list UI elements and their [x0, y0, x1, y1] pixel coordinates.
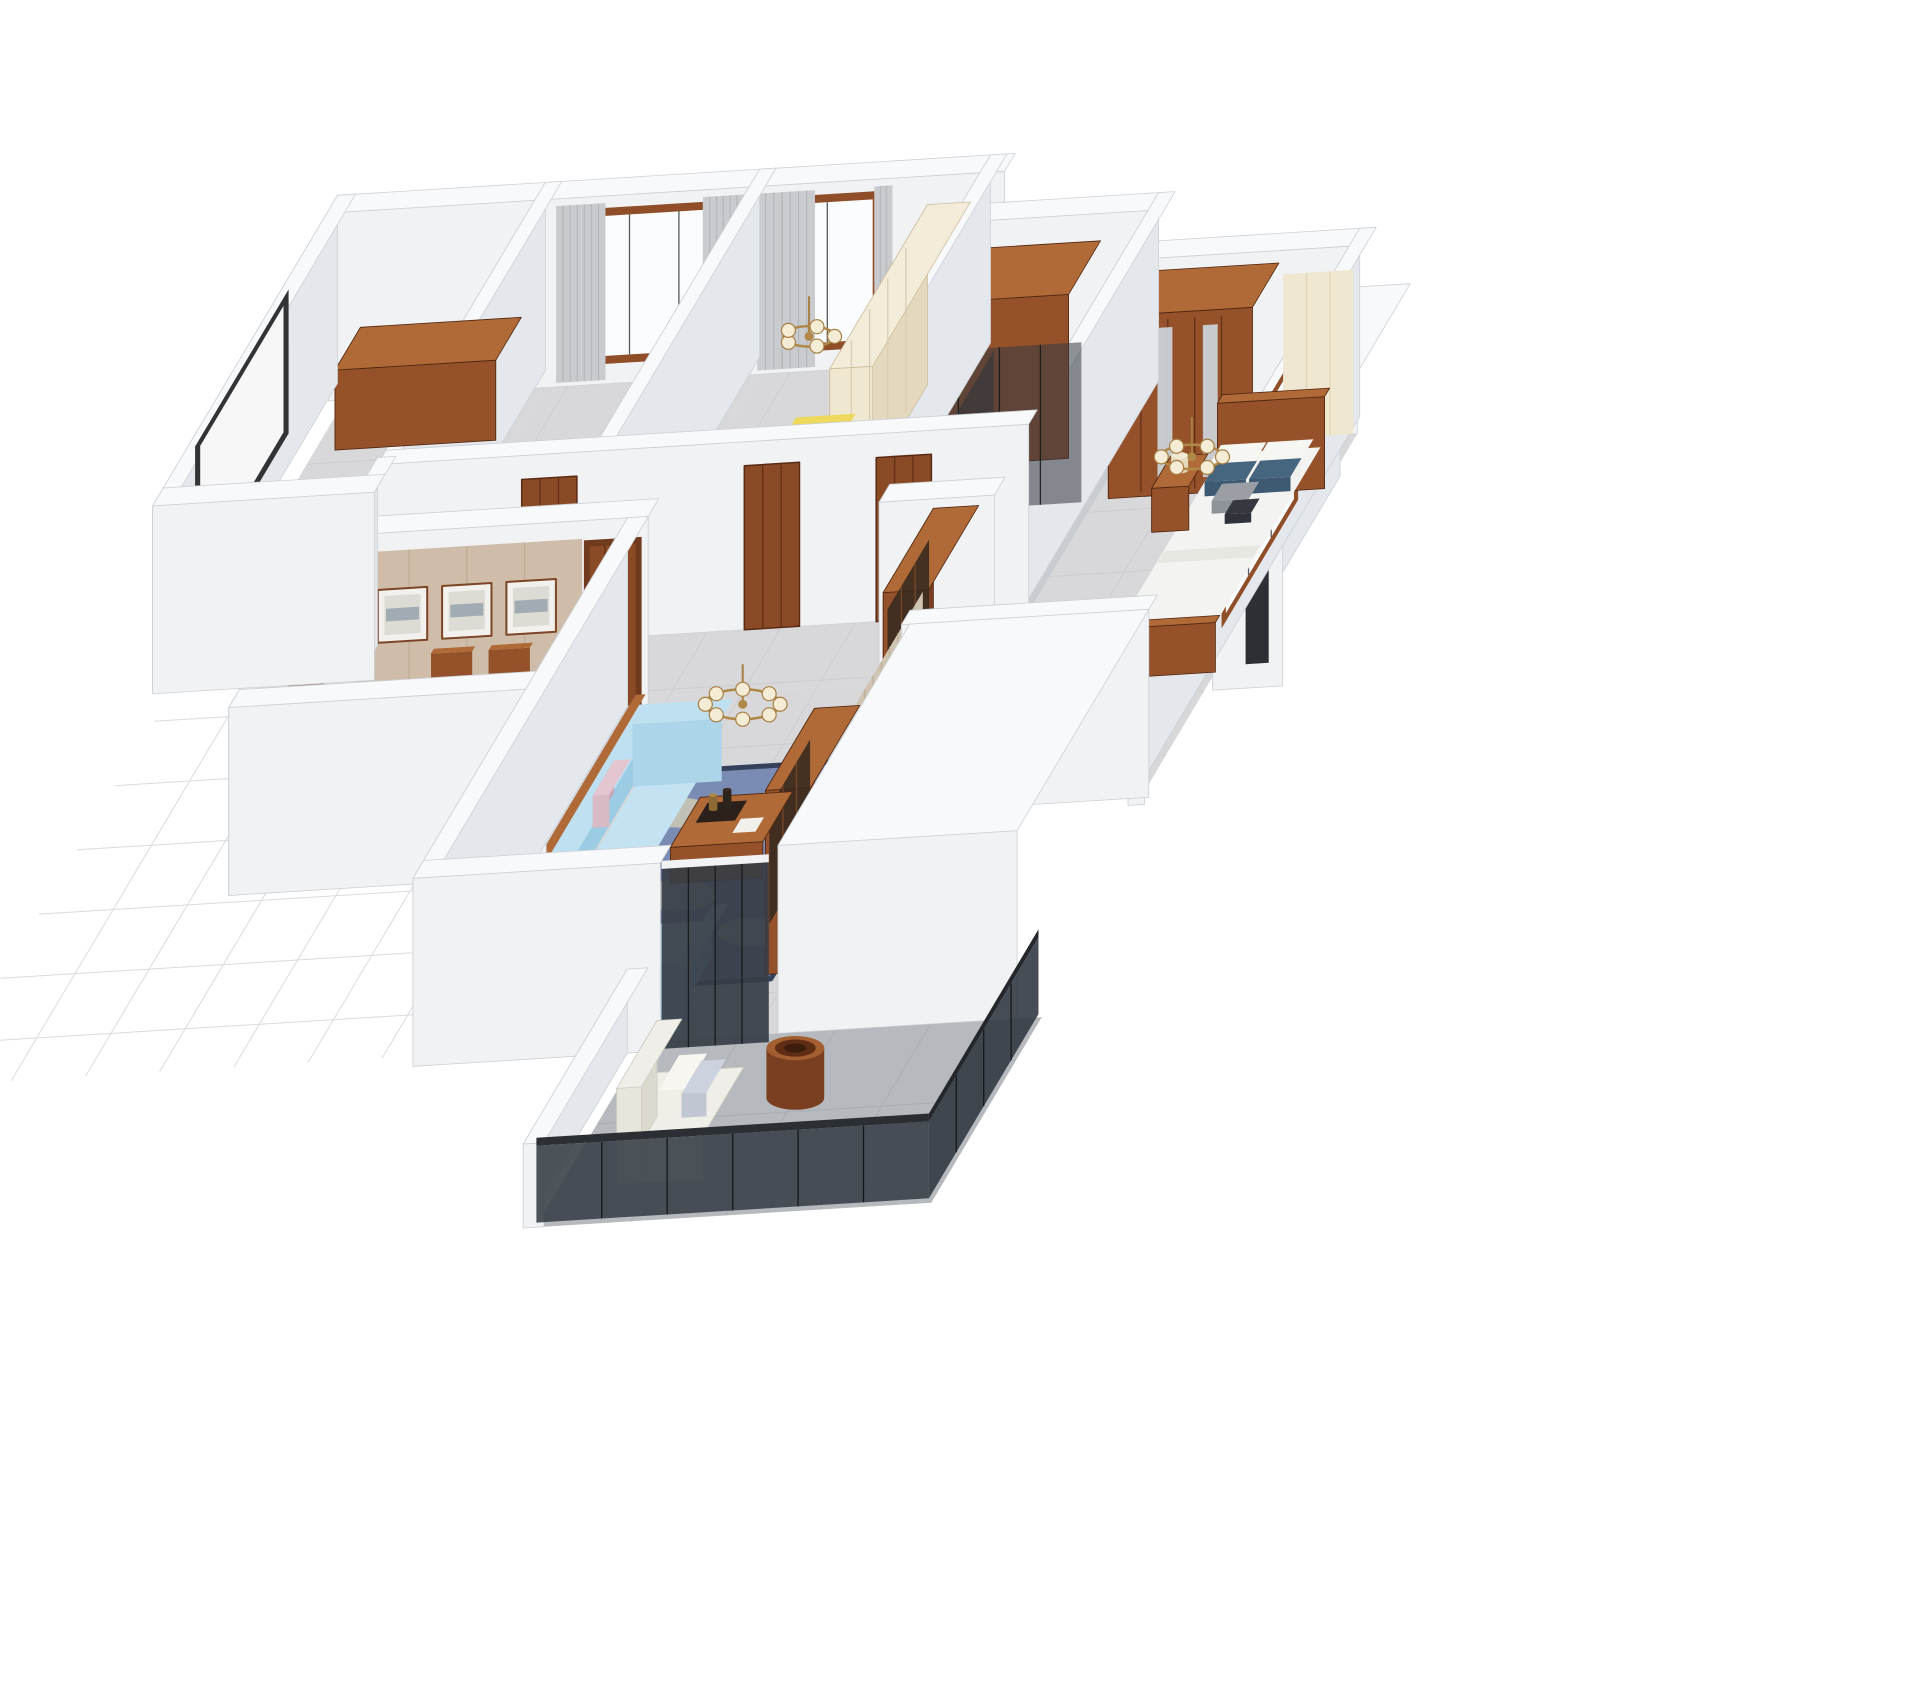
living-chandelier-shade — [762, 687, 776, 701]
master-chandelier-shade — [1170, 439, 1184, 453]
painting-art-band — [386, 607, 419, 622]
master-chandelier-shade — [1170, 460, 1184, 474]
bedroom2-chandelier-shade — [781, 323, 795, 337]
bedroom2-chandelier-shade — [828, 329, 842, 343]
floorplan-3d-render — [0, 0, 1920, 1688]
living-chandelier-shade — [736, 682, 750, 696]
tray-bottle-top — [709, 793, 718, 797]
master-chandelier-hub — [1187, 452, 1196, 461]
render-canvas — [0, 0, 1920, 1688]
master-nightstand-south — [1152, 486, 1189, 532]
master-chandelier-shade — [1154, 450, 1168, 464]
living-chandelier-shade — [736, 712, 750, 726]
kitchen-cabinet-south — [335, 360, 496, 450]
tray-bottle-top — [723, 788, 732, 792]
master-chandelier-shade — [1200, 460, 1214, 474]
bedroom2-door — [744, 462, 799, 630]
sofa-pillow-pink-south — [593, 795, 610, 828]
living-chandelier-shade — [709, 687, 723, 701]
drum-stool-hole — [784, 1043, 806, 1052]
living-chandelier-hub — [738, 700, 747, 709]
living-chandelier-shade — [709, 708, 723, 722]
living-chandelier-shade — [762, 708, 776, 722]
lounge-pillow-blue-south — [682, 1092, 707, 1118]
bedroom2-chandelier-hub — [805, 332, 814, 341]
master-chandelier-shade — [1200, 439, 1214, 453]
wall-kitchen-south-south — [153, 492, 375, 694]
bedroom2-chandelier-shade — [810, 339, 824, 353]
bedroom2-chandelier-shade — [810, 320, 824, 334]
living-chandelier-shade — [773, 697, 787, 711]
painting-art-band — [450, 603, 483, 618]
tray-bottle-side — [709, 795, 718, 811]
painting-art-band — [515, 599, 548, 614]
utility-block-south — [778, 831, 1017, 1034]
living-chandelier-shade — [698, 697, 712, 711]
tray-bottle-side — [723, 790, 732, 809]
pillow-dark-south — [1225, 513, 1251, 524]
master-chandelier-shade — [1215, 450, 1229, 464]
sofa-arm-north-south — [633, 719, 722, 787]
